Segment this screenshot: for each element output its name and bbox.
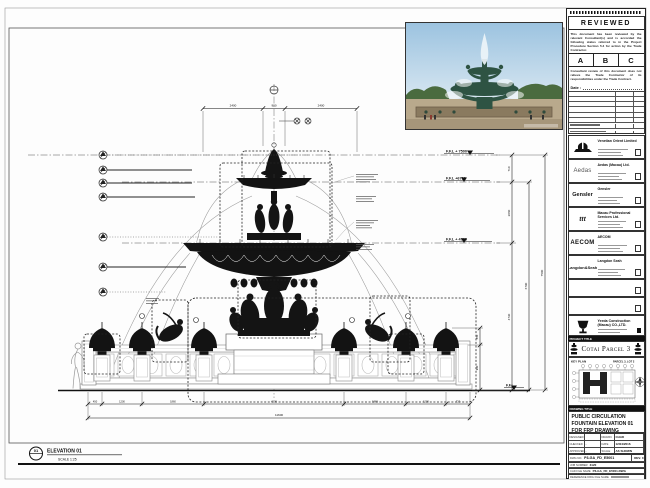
yeeda-logo-icon bbox=[570, 318, 595, 337]
fountain-ornament-icon bbox=[570, 343, 578, 355]
key-plan-drawing: KEY PLAN PARCEL 3, LOT 2 bbox=[569, 358, 645, 406]
dwg-number-value: P3-GA_FD_E5001 bbox=[584, 456, 614, 460]
signature-fields: DESIGNED DRAWN CHAD CHECKED - DATE 12/04… bbox=[568, 433, 645, 454]
sheet-notes-microtext bbox=[568, 10, 644, 15]
checked-label: CHECKED bbox=[569, 441, 585, 448]
consultant-name: Gensler bbox=[598, 187, 642, 191]
key-plan-sublabel: PARCEL 3, LOT 2 bbox=[613, 360, 635, 364]
reference-dwg-label: REFERENCE DWG FILE NAME bbox=[570, 476, 609, 479]
job-number-label: JOB NUMBER bbox=[570, 464, 588, 467]
north-arrow-icon bbox=[634, 377, 645, 388]
key-plan-box: KEY PLAN PARCEL 3, LOT 2 bbox=[568, 357, 645, 406]
consultant-name: Macau Professional Services Ltd. bbox=[598, 211, 642, 219]
svg-text:450: 450 bbox=[475, 334, 479, 339]
consultant-box-aecom: AECOM AECOM bbox=[568, 231, 645, 255]
dim-label: 900 bbox=[271, 104, 276, 108]
consultant-checkbox[interactable] bbox=[635, 305, 642, 312]
svg-text:1860: 1860 bbox=[372, 399, 378, 403]
contractor-marker bbox=[637, 328, 642, 333]
consultant-name: Venetian Orient Limited bbox=[598, 139, 642, 143]
elevation-number: 01 bbox=[34, 448, 39, 453]
reviewed-date-row[interactable]: Date : bbox=[569, 83, 644, 90]
reviewed-stamp-body1: This document has been reviewed by the r… bbox=[569, 30, 644, 53]
consultant-checkbox[interactable] bbox=[635, 221, 642, 228]
revision-value: REV. 0 bbox=[631, 455, 643, 461]
drawing-title-line2: FOUNTAIN ELEVATION 01 bbox=[572, 421, 644, 428]
consultant-box-aedas: Aedas Aedas (Macau) Ltd. bbox=[568, 159, 645, 183]
consultant-checkbox[interactable] bbox=[635, 287, 642, 294]
empty-consultant-box bbox=[568, 279, 645, 297]
triton-statue-left bbox=[156, 313, 186, 345]
consultant-checkbox[interactable] bbox=[635, 269, 642, 276]
consultant-box-venetian: Venetian Orient Limited bbox=[568, 135, 645, 159]
consultant-checkbox[interactable] bbox=[635, 149, 642, 156]
dimension-right-labels: 710 2060 4730 6790 7500 bbox=[507, 166, 544, 320]
fountain-ornament-icon bbox=[634, 343, 642, 355]
dim-label: 2400 bbox=[318, 104, 325, 108]
drawn-label: DRAWN bbox=[601, 434, 615, 441]
svg-text:7500: 7500 bbox=[540, 269, 544, 276]
date-label: Date : bbox=[571, 86, 582, 90]
contractor-name: Yeeda Construction (Macau) CO.,LTD. bbox=[598, 319, 642, 327]
drawing-title-box: PUBLIC CIRCULATION FOUNTAIN ELEVATION 01… bbox=[568, 411, 645, 433]
checked-value: - bbox=[585, 441, 601, 448]
svg-text:930: 930 bbox=[475, 365, 479, 370]
cad-file-label: CAD FILE NAME bbox=[570, 470, 591, 473]
dimension-bottom: 450 1200 1860 4200 1860 1200 720 11600 bbox=[86, 392, 472, 420]
fountain-photo bbox=[405, 22, 563, 130]
svg-text:710: 710 bbox=[507, 166, 511, 171]
grade-c[interactable]: C bbox=[619, 54, 644, 66]
consultant-box-gensler: Gensler Gensler bbox=[568, 183, 645, 207]
grade-a[interactable]: A bbox=[569, 54, 594, 66]
langdon-seah-logo: Langdon&Seah bbox=[570, 258, 595, 277]
drawing-title-line1: PUBLIC CIRCULATION bbox=[572, 414, 644, 421]
dimension-right bbox=[472, 155, 548, 390]
date-value: 12/04/2016 bbox=[615, 441, 644, 448]
consultant-checkbox[interactable] bbox=[635, 197, 642, 204]
upper-basin bbox=[236, 174, 312, 203]
consultant-name: AECOM bbox=[598, 235, 642, 239]
consultant-box-langdon-seah: Langdon&Seah Langdon Seah bbox=[568, 255, 645, 279]
drawing-sheet: { "drawing": { "elevation_number": "01",… bbox=[0, 0, 650, 488]
svg-text:6790: 6790 bbox=[524, 282, 528, 289]
grade-b[interactable]: B bbox=[594, 54, 619, 66]
consultant-box-mps: ttt Macau Professional Services Ltd. bbox=[568, 207, 645, 231]
aecom-logo: AECOM bbox=[570, 234, 595, 253]
dwg-number-row: DWG NO. P3-GA_FD_E5001 REV. 0 bbox=[568, 454, 645, 462]
aedas-logo: Aedas bbox=[570, 162, 595, 181]
elevation-scale: SCALE 1:25 bbox=[58, 458, 77, 462]
svg-text:1860: 1860 bbox=[170, 399, 176, 403]
svg-text:2060: 2060 bbox=[507, 209, 511, 216]
elevation-marker: 01 ELEVATION 01 SCALE 1:25 bbox=[18, 447, 560, 464]
designed-value bbox=[585, 434, 601, 441]
dwg-number-label: DWG NO. bbox=[570, 457, 582, 460]
reference-dwg-row: REFERENCE DWG FILE NAME bbox=[568, 474, 645, 479]
svg-text:720: 720 bbox=[456, 399, 461, 403]
triton-statue-right bbox=[362, 313, 392, 345]
reviewed-stamp-body2: Consultant review of this document does … bbox=[569, 67, 644, 82]
elevation-title: ELEVATION 01 bbox=[47, 449, 82, 455]
venetian-orient-logo-icon bbox=[570, 138, 595, 157]
middle-tier-statues bbox=[247, 199, 301, 240]
reviewed-grade-row: A B C bbox=[569, 53, 644, 67]
consultant-name: Aedas (Macau) Ltd. bbox=[598, 163, 642, 167]
empty-consultant-box bbox=[568, 297, 645, 315]
central-statue-group bbox=[226, 281, 321, 336]
reviewed-stamp-title: REVIEWED bbox=[569, 17, 644, 30]
drawn-value: CHAD bbox=[615, 434, 644, 441]
svg-text:1200: 1200 bbox=[423, 399, 429, 403]
project-title: Cotai Parcel 3 bbox=[581, 345, 630, 353]
contractor-box: Yeeda Construction (Macau) CO.,LTD. bbox=[568, 315, 645, 336]
dim-label: 2400 bbox=[230, 104, 237, 108]
level-label-7500: F.F.L + 7500 bbox=[446, 150, 467, 154]
reviewed-stamp: REVIEWED This document has been reviewed… bbox=[568, 16, 645, 134]
job-number-value: 3120 bbox=[590, 463, 597, 467]
central-pedestal bbox=[218, 334, 330, 384]
consultant-checkbox[interactable] bbox=[635, 173, 642, 180]
dimension-top: 2400 900 2400 bbox=[201, 104, 359, 153]
dim-overall-label: 11600 bbox=[275, 413, 283, 417]
consultant-name: Langdon Seah bbox=[598, 259, 642, 263]
svg-text:4730: 4730 bbox=[507, 313, 511, 320]
designed-label: DESIGNED bbox=[569, 434, 585, 441]
svg-text:450: 450 bbox=[93, 399, 98, 403]
consultant-checkbox[interactable] bbox=[635, 245, 642, 252]
gensler-logo: Gensler bbox=[570, 186, 595, 205]
project-title-box: Cotai Parcel 3 bbox=[568, 341, 645, 357]
fountain-photo-image bbox=[406, 23, 562, 129]
cad-file-value: P3-GA_FD_E5001.DWG bbox=[593, 469, 626, 473]
keynote-bubbles bbox=[99, 151, 107, 296]
mps-logo: ttt bbox=[570, 210, 595, 229]
reviewed-table bbox=[569, 91, 644, 134]
title-block-column: REVIEWED This document has been reviewed… bbox=[566, 8, 646, 479]
key-plan-label: KEY PLAN bbox=[571, 360, 586, 364]
date-label: DATE bbox=[601, 441, 615, 448]
svg-text:4200: 4200 bbox=[271, 399, 277, 403]
svg-text:1200: 1200 bbox=[119, 399, 125, 403]
